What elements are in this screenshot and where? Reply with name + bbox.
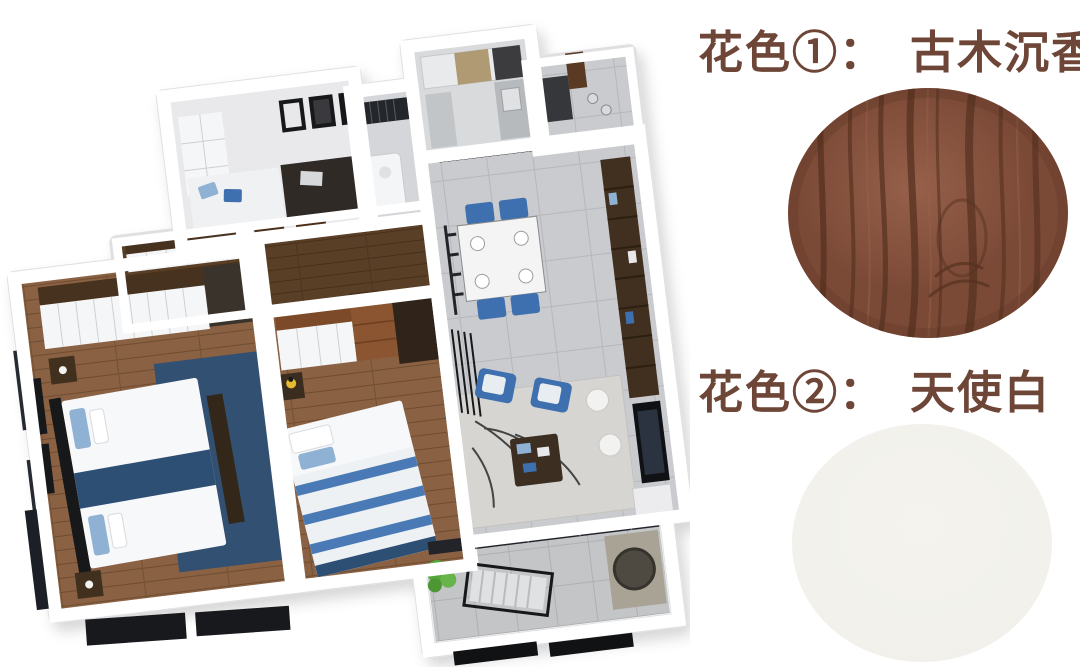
dining-chair [498, 197, 528, 220]
swatch-1-name: 古木沉香 [910, 16, 1080, 81]
study-pillow [224, 189, 242, 202]
coffee-table [510, 433, 563, 486]
floorplan-render [0, 0, 690, 667]
swatch-white-circle [790, 422, 1054, 664]
floorplan-svg [0, 0, 690, 667]
swatch-label-1: 花色①： 古木沉香 [698, 16, 1080, 81]
dining-table [457, 216, 546, 301]
swatch-1-prefix: 花色①： [698, 16, 886, 81]
swatch-wood-circle [786, 86, 1070, 340]
swatch-2-prefix: 花色②： [698, 356, 886, 421]
dining-chair [476, 297, 506, 320]
swatch-2-name: 天使白 [910, 356, 1051, 421]
dining-chair [510, 293, 540, 316]
swatch-label-2: 花色②： 天使白 [698, 356, 1051, 421]
page: 花色①： 古木沉香 [0, 0, 1080, 667]
dining-chair [465, 201, 495, 224]
